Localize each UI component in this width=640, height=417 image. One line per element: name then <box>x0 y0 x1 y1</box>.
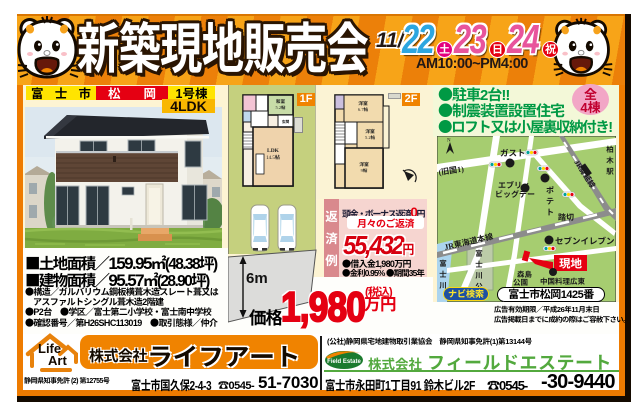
svg-text:Art: Art <box>48 353 67 368</box>
svg-text:洋室: 洋室 <box>358 100 368 107</box>
svg-text:6.7帖: 6.7帖 <box>358 107 369 113</box>
svg-text:玄関: 玄関 <box>282 119 290 125</box>
svg-text:Field Estate: Field Estate <box>327 359 361 365</box>
svg-text:ビッグデー: ビッグデー <box>495 189 535 200</box>
svg-text:LDK: LDK <box>267 146 280 154</box>
svg-text:ポテト: ポテト <box>545 185 556 218</box>
svg-text:洋室: 洋室 <box>359 161 369 168</box>
svg-text:セブンイレブン: セブンイレブン <box>555 235 615 247</box>
svg-text:柏木駅: 柏木駅 <box>605 144 616 177</box>
svg-text:ガスト: ガスト <box>500 147 526 159</box>
svg-text:富士川: 富士川 <box>438 258 449 291</box>
svg-text:5.2帖: 5.2帖 <box>276 105 286 111</box>
svg-text:14.5帖: 14.5帖 <box>266 154 280 161</box>
svg-text:N: N <box>447 137 451 144</box>
svg-text:9帖: 9帖 <box>361 168 368 174</box>
svg-text:洋室: 洋室 <box>365 128 375 135</box>
svg-text:現地: 現地 <box>559 256 582 272</box>
svg-text:5.2帖: 5.2帖 <box>365 135 376 141</box>
svg-text:踏切: 踏切 <box>558 212 574 223</box>
